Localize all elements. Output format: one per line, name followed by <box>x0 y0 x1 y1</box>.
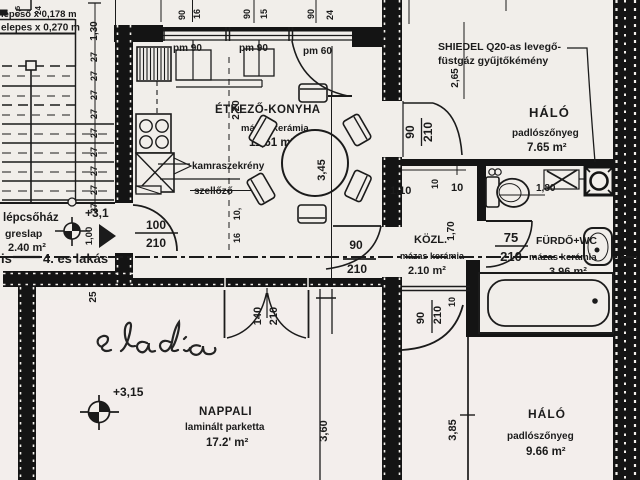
svg-text:27: 27 <box>89 109 99 119</box>
svg-text:27: 27 <box>89 52 99 62</box>
svg-text:füstgáz gyűjtőkémény: füstgáz gyűjtőkémény <box>438 55 548 67</box>
svg-text:210: 210 <box>432 306 444 324</box>
svg-text:9.66 m²: 9.66 m² <box>526 446 566 458</box>
svg-text:1,30: 1,30 <box>89 21 100 41</box>
svg-text:90: 90 <box>349 238 363 252</box>
svg-text:210: 210 <box>268 307 280 325</box>
svg-text:10,: 10, <box>232 208 242 221</box>
svg-text:2,65: 2,65 <box>450 68 461 88</box>
svg-text:7.65 m²: 7.65 m² <box>527 142 567 154</box>
svg-text:27: 27 <box>89 71 99 81</box>
svg-text:pm 90: pm 90 <box>173 43 202 54</box>
svg-text:+3,1: +3,1 <box>85 206 109 220</box>
svg-text:1,10: 1,10 <box>390 185 411 197</box>
svg-text:kamraszekrény: kamraszekrény <box>192 161 265 172</box>
svg-text:90: 90 <box>242 9 252 19</box>
svg-text:NAPPALI: NAPPALI <box>199 406 252 418</box>
svg-text:1,70: 1,70 <box>446 221 457 241</box>
svg-text:mázas kerámia: mázas kerámia <box>529 252 597 263</box>
svg-text:210: 210 <box>347 262 367 276</box>
svg-text:210: 210 <box>146 236 166 250</box>
svg-text:greslap: greslap <box>5 228 42 240</box>
svg-text:15: 15 <box>259 9 269 19</box>
svg-text:HÁLÓ: HÁLÓ <box>528 406 566 421</box>
svg-text:24: 24 <box>34 5 43 14</box>
svg-text:HÁLÓ: HÁLÓ <box>529 105 570 120</box>
svg-text:27: 27 <box>89 90 99 100</box>
svg-text:140: 140 <box>252 307 264 325</box>
svg-text:elepes x 0,270 m: elepes x 0,270 m <box>1 23 80 34</box>
svg-text:75: 75 <box>504 230 518 245</box>
svg-text:24: 24 <box>325 10 335 20</box>
svg-text:0,5: 0,5 <box>15 6 22 16</box>
svg-text:90: 90 <box>415 312 427 324</box>
svg-text:16: 16 <box>232 233 242 243</box>
svg-text:FÜRDŐ+WC: FÜRDŐ+WC <box>536 234 597 247</box>
svg-text:10: 10 <box>430 179 440 189</box>
svg-text:2.10 m²: 2.10 m² <box>408 265 446 277</box>
svg-text:padlószőnyeg: padlószőnyeg <box>512 128 579 139</box>
svg-text:90: 90 <box>177 10 187 20</box>
svg-text:+3,15: +3,15 <box>113 385 144 399</box>
svg-text:17.2' m²: 17.2' m² <box>206 437 249 449</box>
svg-text:2,20: 2,20 <box>231 100 242 120</box>
svg-text:SHIEDEL Q20-as levegő-: SHIEDEL Q20-as levegő- <box>438 41 561 53</box>
svg-text:1,00: 1,00 <box>84 227 95 246</box>
svg-text:3,60: 3,60 <box>318 420 330 441</box>
svg-text:90: 90 <box>403 125 417 139</box>
svg-text:25: 25 <box>88 291 99 303</box>
svg-text:3,45: 3,45 <box>316 159 328 180</box>
svg-text:laminált parketta: laminált parketta <box>185 422 265 433</box>
svg-text:is: is <box>1 251 12 266</box>
svg-text:2.40 m²: 2.40 m² <box>8 242 46 254</box>
svg-text:10: 10 <box>447 297 457 307</box>
svg-text:27: 27 <box>89 185 99 195</box>
svg-text:3,85: 3,85 <box>447 419 459 440</box>
svg-text:szellőző: szellőző <box>194 186 233 197</box>
svg-text:pm 60: pm 60 <box>303 46 332 57</box>
svg-text:KÖZL.: KÖZL. <box>414 233 447 246</box>
svg-text:100: 100 <box>146 218 166 232</box>
svg-text:27: 27 <box>89 128 99 138</box>
svg-text:padlószőnyeg: padlószőnyeg <box>507 431 574 442</box>
svg-text:90: 90 <box>306 9 316 19</box>
svg-text:mázas kerámia: mázas kerámia <box>400 251 465 261</box>
svg-text:4. es lakás: 4. es lakás <box>43 251 108 266</box>
svg-text:27: 27 <box>89 166 99 176</box>
svg-text:lépcsőház: lépcsőház <box>3 212 59 224</box>
svg-text:210: 210 <box>421 122 435 142</box>
svg-text:210: 210 <box>500 249 522 264</box>
svg-text:16: 16 <box>192 9 202 19</box>
svg-text:27: 27 <box>89 147 99 157</box>
svg-text:10: 10 <box>451 182 463 194</box>
